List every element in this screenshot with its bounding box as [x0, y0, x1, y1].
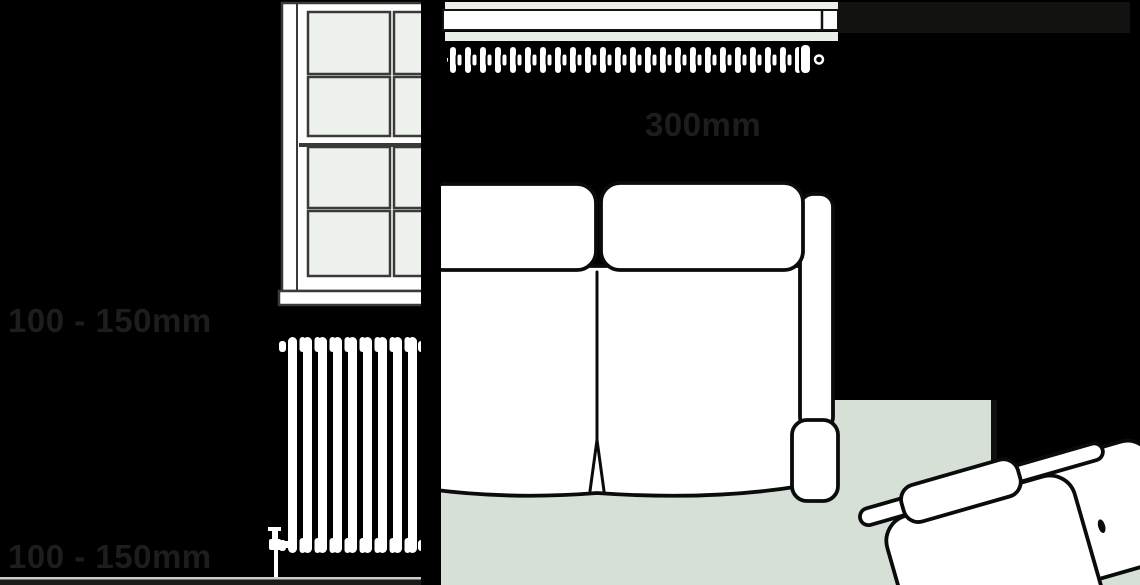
window-sill: [279, 291, 424, 305]
front-view-panel: [0, 3, 436, 585]
window-plan-icon: [443, 2, 838, 41]
clearance-label-floor-to-radiator: 100 - 150mm: [8, 540, 212, 573]
radiator-pipe: [274, 550, 278, 579]
sofa-plan-icon: [424, 183, 838, 501]
radiator-valve-icon: [268, 527, 288, 579]
sofa-seat: [428, 266, 801, 496]
window-front-icon: [279, 3, 436, 305]
sofa-armrest-front: [792, 420, 838, 501]
radiator-front-icon: [279, 337, 425, 553]
clearance-label-window-to-radiator: 100 - 150mm: [8, 304, 212, 337]
radiator-plan-icon: [447, 44, 823, 74]
radiator-bleed-valve-icon: [815, 56, 823, 64]
panel-divider: [421, 0, 441, 585]
sofa-back-cushion-right: [601, 183, 803, 270]
sofa-armrest: [800, 194, 833, 430]
floor-line: [0, 577, 421, 585]
sofa-back-cushion-left: [424, 184, 596, 270]
radiator-clearance-diagram: 300mm 100 - 150mm 100 - 150mm: [0, 0, 1140, 585]
diagram-canvas: [0, 0, 1140, 585]
wall-plan: [443, 2, 1130, 41]
plan-view-panel: [424, 2, 1140, 585]
clearance-label-radiator-to-sofa: 300mm: [645, 108, 761, 141]
